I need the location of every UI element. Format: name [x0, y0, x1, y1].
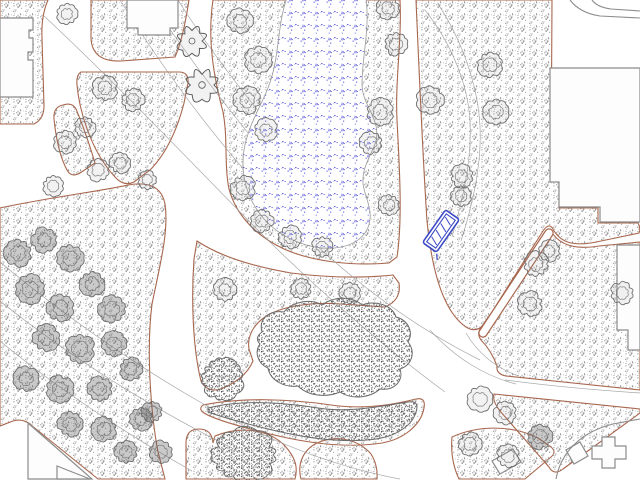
tree-symbol: [451, 164, 473, 189]
site-plan-viewport: [0, 0, 640, 480]
tree-symbol: [16, 274, 45, 305]
building-curve-top-right-1: [570, 0, 640, 18]
shrub-mass-large-outline: [257, 298, 412, 397]
flower-tree-symbol: [186, 69, 218, 102]
tree-symbol: [57, 3, 78, 24]
tree-symbol: [483, 99, 509, 125]
tree-symbol: [467, 386, 493, 412]
tree-symbol: [92, 75, 117, 100]
shrub-mass-large: [257, 298, 412, 397]
tree-symbol: [291, 278, 311, 299]
tree-symbol: [539, 240, 560, 263]
tree-symbol: [54, 130, 77, 154]
tree-symbol: [57, 245, 85, 273]
tree-symbol: [245, 46, 272, 74]
tree-symbol: [13, 366, 39, 392]
bed-left-large: [0, 184, 166, 479]
site-plan-canvas[interactable]: [0, 0, 640, 480]
building-curve-top-right-2: [592, 0, 640, 11]
tree-symbol: [43, 175, 63, 196]
building-top-left: [0, 18, 33, 97]
tree-symbol: [385, 33, 408, 57]
tree-symbol: [451, 186, 472, 207]
tree-symbol: [255, 118, 277, 142]
tree-symbol: [367, 97, 393, 126]
tree-symbol: [87, 158, 109, 182]
tree-symbol: [378, 195, 399, 216]
tree-symbol: [47, 375, 74, 404]
building-right-large: [550, 68, 640, 222]
